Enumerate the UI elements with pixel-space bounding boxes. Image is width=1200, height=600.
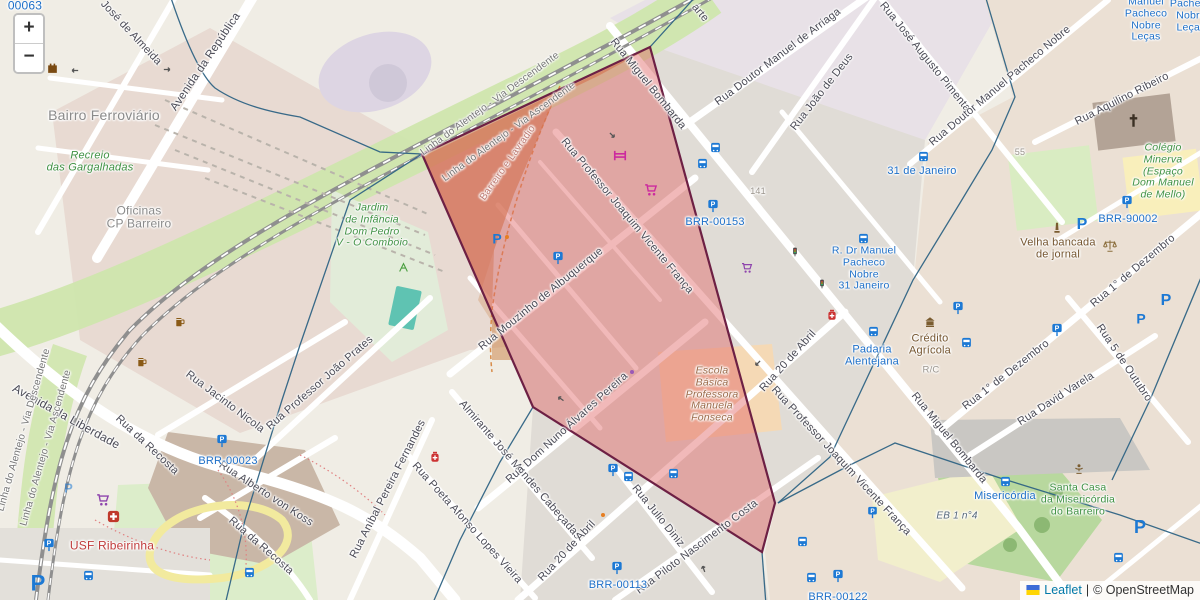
zoom-control: + − [13,13,45,74]
attribution-separator: | [1086,583,1089,597]
leaflet-map[interactable]: P P 00063José de AlmeidaAvenida da Repúb… [0,0,1200,600]
leaflet-link[interactable]: Leaflet [1044,583,1082,597]
ukraine-flag-icon [1026,585,1040,595]
basemap-tiles: P P [0,0,1200,600]
zoom-out-button[interactable]: − [15,43,43,72]
zoom-in-button[interactable]: + [15,15,43,43]
openstreetmap-link[interactable]: © OpenStreetMap [1093,583,1194,597]
attribution-bar: Leaflet | © OpenStreetMap [1020,581,1200,600]
